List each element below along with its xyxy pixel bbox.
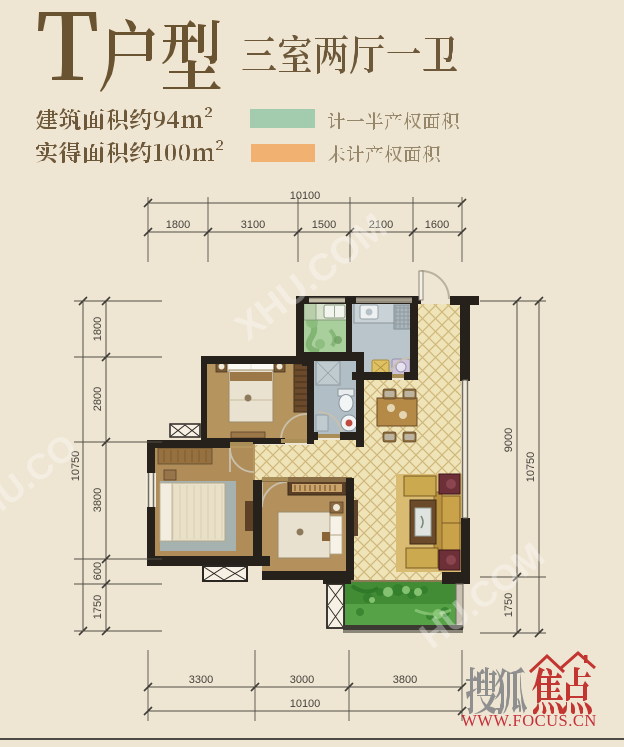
svg-text:1600: 1600 [425, 219, 449, 231]
svg-text:2800: 2800 [92, 387, 104, 411]
svg-text:3000: 3000 [290, 674, 314, 686]
svg-text:9000: 9000 [503, 428, 515, 452]
svg-text:1750: 1750 [92, 595, 104, 619]
svg-text:3300: 3300 [189, 674, 213, 686]
svg-text:3100: 3100 [241, 219, 265, 231]
svg-text:WWW.FOCUS.CN: WWW.FOCUS.CN [461, 711, 597, 730]
svg-text:1800: 1800 [166, 219, 190, 231]
svg-text:3800: 3800 [92, 488, 104, 512]
svg-text:10750: 10750 [525, 452, 537, 483]
svg-text:3800: 3800 [393, 674, 417, 686]
svg-text:1800: 1800 [92, 317, 104, 341]
svg-text:10100: 10100 [290, 698, 321, 710]
svg-text:10100: 10100 [290, 190, 321, 202]
svg-text:600: 600 [92, 562, 104, 580]
svg-text:1500: 1500 [312, 219, 336, 231]
